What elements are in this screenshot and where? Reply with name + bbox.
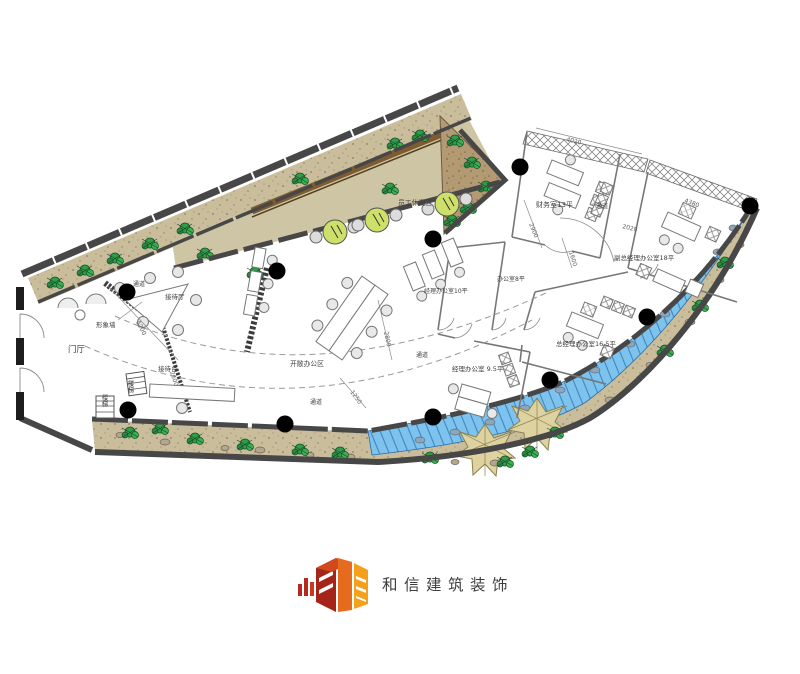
- label-passage-2: 通道: [310, 398, 322, 406]
- label-stairs-1: 楼梯: [126, 379, 134, 395]
- label-office-8: 办公室8平: [497, 275, 525, 283]
- floor-plan-page: 门厅 形象墙 接待厅 接待台 楼梯 楼梯 开敞办公区 员工休闲区 通道 通道 通…: [0, 0, 800, 674]
- label-manager-office-10: 经理办公室10平: [424, 287, 468, 295]
- label-deputy-gm-office: 副总经理办公室18平: [614, 253, 675, 262]
- company-logo: 和信建筑装饰: [298, 558, 514, 612]
- label-finance-office: 财务室13平: [536, 200, 573, 209]
- label-feature-wall: 形象墙: [96, 320, 116, 329]
- label-passage-1: 通道: [133, 280, 145, 288]
- label-passage-3: 通道: [416, 351, 428, 359]
- interior-door-arcs: [438, 218, 658, 338]
- floor-plan-drawing: 门厅 形象墙 接待厅 接待台 楼梯 楼梯 开敞办公区 员工休闲区 通道 通道 通…: [0, 0, 800, 674]
- label-reception-hall: 接待厅: [165, 292, 185, 301]
- label-gm-office: 总经理办公室16.5平: [556, 339, 616, 348]
- label-open-office: 开敞办公区: [290, 359, 324, 368]
- company-name: 和信建筑装饰: [382, 576, 514, 594]
- label-stairs-2: 楼梯: [100, 393, 108, 409]
- dim-1250: 1250: [348, 389, 363, 406]
- dim-2020: 2020: [622, 223, 639, 234]
- logo-mark: [298, 558, 368, 612]
- label-manager-office-9-5: 经理办公室 9.5平: [452, 364, 504, 373]
- label-staff-lounge: 员工休闲区: [398, 198, 432, 207]
- label-foyer: 门厅: [68, 344, 86, 355]
- label-passage-4: 通道: [596, 202, 608, 210]
